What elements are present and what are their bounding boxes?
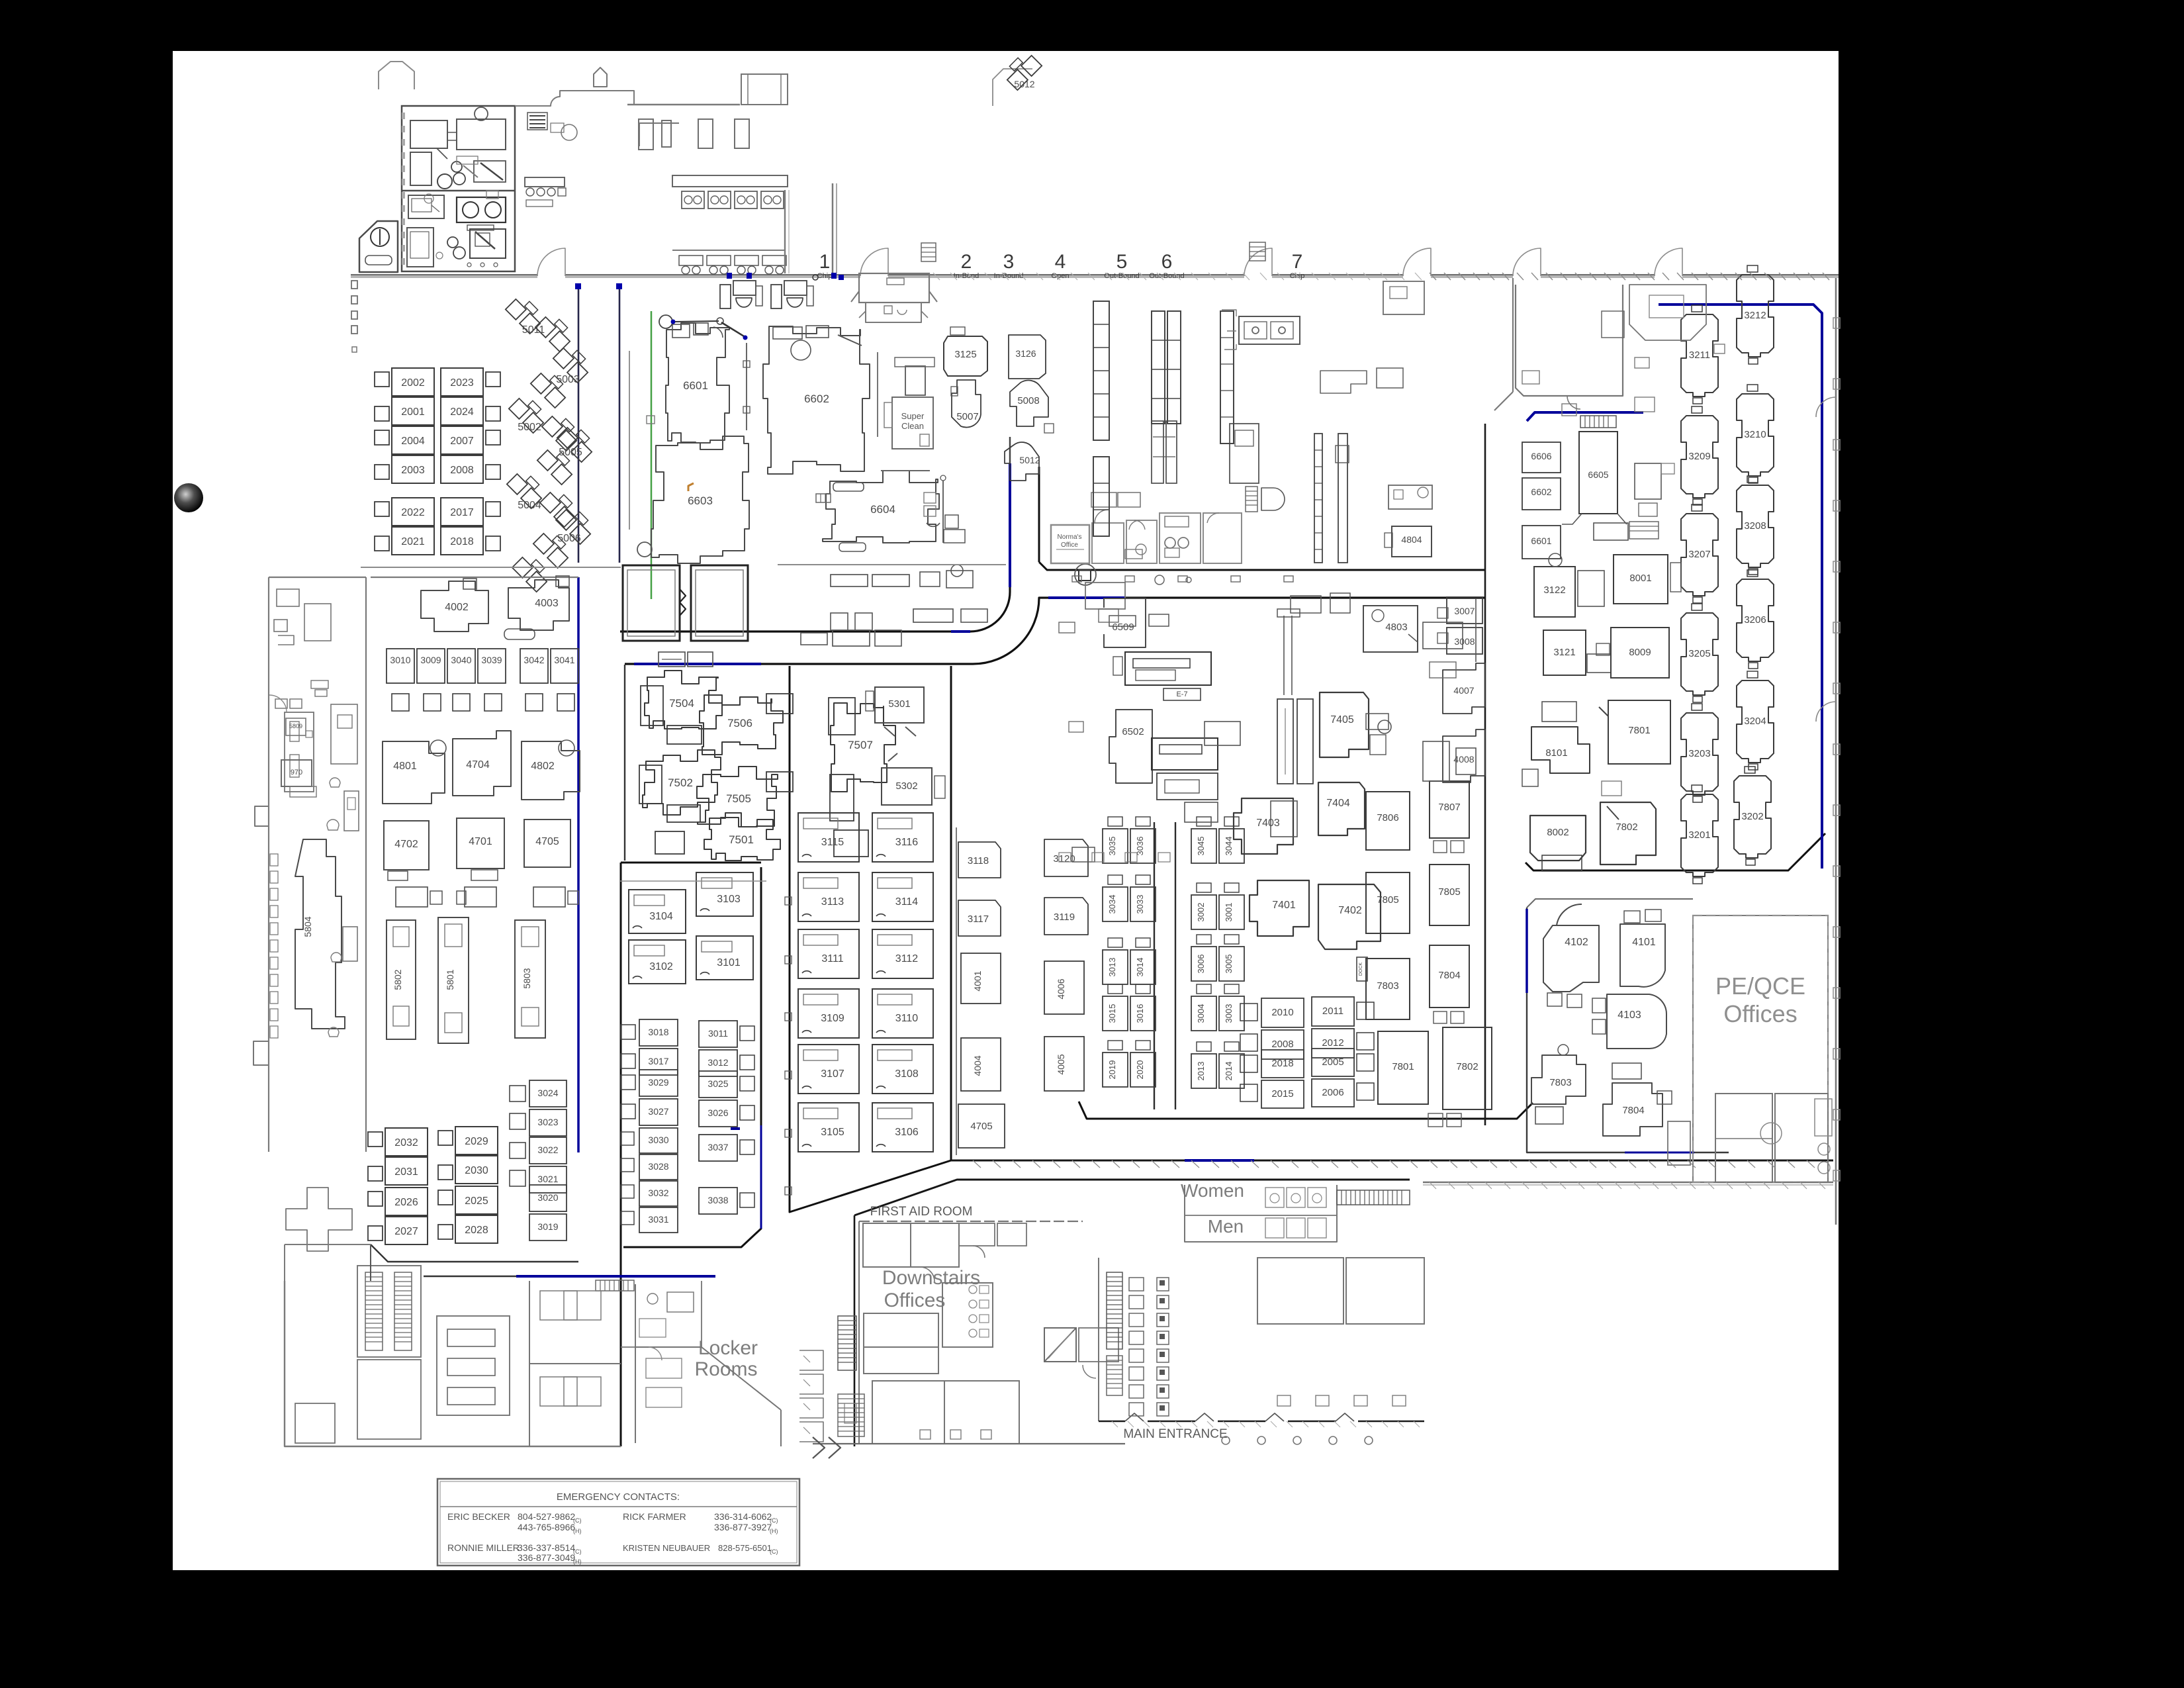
svg-text:2032: 2032 — [394, 1137, 418, 1149]
svg-text:3041: 3041 — [554, 655, 574, 665]
svg-text:7802: 7802 — [1615, 821, 1637, 833]
svg-text:2004: 2004 — [401, 436, 425, 447]
svg-text:6602: 6602 — [804, 393, 829, 405]
svg-text:3107: 3107 — [821, 1068, 844, 1080]
svg-text:7801: 7801 — [1628, 725, 1650, 736]
svg-text:3114: 3114 — [895, 896, 919, 908]
svg-text:6601: 6601 — [683, 379, 708, 392]
svg-text:3008: 3008 — [1454, 636, 1475, 647]
svg-text:4004: 4004 — [972, 1055, 983, 1076]
svg-text:Offices: Offices — [884, 1289, 946, 1311]
svg-text:5003: 5003 — [556, 374, 580, 385]
svg-text:4006: 4006 — [1056, 978, 1066, 999]
svg-text:Men: Men — [1208, 1216, 1244, 1237]
svg-text:2011: 2011 — [1322, 1006, 1343, 1017]
svg-text:7502: 7502 — [668, 776, 693, 789]
svg-text:5801: 5801 — [445, 969, 455, 990]
svg-text:3110: 3110 — [895, 1013, 919, 1024]
svg-text:Downstairs: Downstairs — [882, 1267, 980, 1289]
svg-text:4102: 4102 — [1565, 937, 1588, 948]
svg-text:2: 2 — [961, 251, 972, 273]
svg-text:DOCK: DOCK — [1359, 962, 1363, 976]
svg-text:336-877-3927: 336-877-3927 — [714, 1522, 772, 1532]
svg-text:EMERGENCY CONTACTS:: EMERGENCY CONTACTS: — [557, 1491, 680, 1503]
svg-text:2020: 2020 — [1135, 1060, 1145, 1080]
svg-text:4705: 4705 — [970, 1121, 992, 1132]
svg-text:3035: 3035 — [1107, 837, 1117, 856]
svg-text:3115: 3115 — [821, 837, 844, 848]
svg-text:Chip: Chip — [817, 272, 833, 280]
svg-text:5011: 5011 — [522, 324, 545, 336]
svg-text:3026: 3026 — [707, 1107, 728, 1118]
svg-text:3205: 3205 — [1688, 648, 1710, 659]
svg-text:(H): (H) — [573, 1558, 582, 1565]
svg-text:2017: 2017 — [450, 507, 474, 518]
svg-text:3201: 3201 — [1688, 829, 1710, 841]
svg-text:7506: 7506 — [727, 717, 752, 729]
svg-text:6601: 6601 — [1531, 536, 1551, 546]
svg-text:2026: 2026 — [394, 1197, 418, 1208]
svg-text:3206: 3206 — [1744, 614, 1766, 626]
svg-text:2003: 2003 — [401, 465, 425, 476]
svg-text:7803: 7803 — [1377, 980, 1398, 992]
svg-text:3102: 3102 — [649, 961, 673, 972]
svg-text:3017: 3017 — [648, 1056, 668, 1066]
svg-text:3005: 3005 — [1224, 955, 1234, 974]
svg-text:7806: 7806 — [1377, 812, 1398, 823]
svg-text:3010: 3010 — [390, 655, 410, 665]
svg-text:443-765-8966: 443-765-8966 — [518, 1522, 575, 1532]
svg-text:(H): (H) — [573, 1528, 582, 1534]
svg-text:4803: 4803 — [1385, 622, 1407, 633]
svg-text:8101: 8101 — [1545, 747, 1567, 759]
svg-text:4003: 4003 — [535, 598, 559, 609]
svg-text:4804: 4804 — [1401, 534, 1422, 545]
svg-text:3121: 3121 — [1553, 647, 1575, 658]
svg-text:7803: 7803 — [1549, 1077, 1571, 1088]
svg-text:2002: 2002 — [401, 377, 425, 389]
svg-text:2023: 2023 — [450, 377, 474, 389]
svg-text:3016: 3016 — [1135, 1004, 1145, 1023]
svg-text:2030: 2030 — [465, 1165, 488, 1176]
svg-text:7804: 7804 — [1622, 1105, 1644, 1116]
svg-text:3033: 3033 — [1135, 895, 1145, 914]
svg-text:4: 4 — [1055, 251, 1066, 273]
svg-text:3116: 3116 — [895, 837, 919, 848]
svg-text:3038: 3038 — [707, 1195, 728, 1205]
svg-text:5: 5 — [1116, 251, 1128, 273]
svg-text:Locker: Locker — [698, 1337, 758, 1359]
svg-text:804-527-9862: 804-527-9862 — [518, 1511, 575, 1522]
svg-text:2015: 2015 — [1271, 1088, 1293, 1100]
svg-text:336-877-3049: 336-877-3049 — [518, 1552, 575, 1563]
svg-text:In-Bond: In-Bond — [954, 272, 979, 280]
svg-text:3119: 3119 — [1054, 912, 1075, 923]
svg-text:2008: 2008 — [450, 465, 474, 476]
svg-text:5007: 5007 — [956, 411, 978, 422]
svg-text:4705: 4705 — [535, 836, 559, 847]
svg-text:3: 3 — [1003, 251, 1015, 273]
svg-text:3029: 3029 — [648, 1077, 668, 1088]
svg-text:FIRST AID ROOM: FIRST AID ROOM — [870, 1205, 973, 1219]
svg-text:4002: 4002 — [445, 602, 469, 613]
svg-text:2018: 2018 — [450, 536, 474, 547]
svg-text:5802: 5802 — [392, 969, 403, 990]
svg-text:3013: 3013 — [1107, 958, 1117, 977]
svg-text:336-314-6062: 336-314-6062 — [714, 1511, 772, 1522]
svg-text:3209: 3209 — [1688, 451, 1710, 462]
svg-text:3208: 3208 — [1744, 520, 1766, 532]
svg-text:3202: 3202 — [1741, 811, 1763, 822]
svg-text:Out-Bound: Out-Bound — [1104, 272, 1139, 280]
svg-text:5006: 5006 — [557, 533, 581, 544]
svg-text:2008: 2008 — [1271, 1039, 1293, 1050]
svg-text:3027: 3027 — [648, 1106, 668, 1117]
svg-text:4008: 4008 — [1453, 754, 1474, 765]
svg-text:3001: 3001 — [1224, 903, 1234, 922]
svg-text:6606: 6606 — [1531, 451, 1551, 461]
svg-text:7401: 7401 — [1272, 900, 1296, 911]
svg-text:3106: 3106 — [895, 1127, 919, 1138]
svg-text:2024: 2024 — [450, 406, 474, 418]
svg-text:5002: 5002 — [518, 422, 541, 433]
svg-text:7403: 7403 — [1256, 818, 1280, 829]
svg-text:7504: 7504 — [669, 697, 694, 710]
svg-text:7805: 7805 — [1438, 886, 1460, 898]
svg-text:3003: 3003 — [1224, 1004, 1234, 1023]
svg-text:3203: 3203 — [1688, 748, 1710, 759]
svg-text:(C): (C) — [770, 1548, 778, 1555]
svg-text:7807: 7807 — [1438, 802, 1460, 813]
svg-text:4101: 4101 — [1632, 937, 1656, 948]
svg-text:3006: 3006 — [1196, 955, 1206, 974]
svg-text:Office: Office — [1061, 541, 1078, 549]
svg-text:2013: 2013 — [1196, 1062, 1206, 1081]
svg-text:3031: 3031 — [648, 1214, 668, 1225]
svg-text:5301: 5301 — [888, 698, 910, 710]
svg-text:3117: 3117 — [968, 914, 989, 925]
svg-text:5803: 5803 — [522, 968, 532, 988]
svg-text:3204: 3204 — [1744, 716, 1766, 727]
svg-text:3105: 3105 — [821, 1127, 844, 1138]
svg-text:970: 970 — [291, 769, 302, 776]
svg-text:KRISTEN NEUBAUER: KRISTEN NEUBAUER — [623, 1543, 710, 1553]
svg-text:3002: 3002 — [1196, 903, 1206, 922]
svg-text:Rooms: Rooms — [694, 1358, 757, 1380]
svg-text:Norma's: Norma's — [1058, 534, 1082, 541]
svg-text:7: 7 — [1292, 251, 1303, 273]
svg-text:3104: 3104 — [649, 911, 673, 922]
svg-text:2022: 2022 — [401, 507, 425, 518]
svg-text:3042: 3042 — [523, 655, 544, 665]
svg-text:3207: 3207 — [1688, 549, 1710, 560]
svg-text:PE/QCE: PE/QCE — [1715, 972, 1805, 1000]
svg-text:3015: 3015 — [1107, 1004, 1117, 1023]
svg-text:4802: 4802 — [531, 761, 555, 772]
svg-text:5012: 5012 — [1014, 79, 1034, 89]
svg-text:3025: 3025 — [707, 1078, 728, 1089]
svg-text:3007: 3007 — [1454, 606, 1475, 616]
svg-text:4704: 4704 — [466, 759, 490, 771]
svg-text:3024: 3024 — [537, 1088, 558, 1098]
svg-text:4702: 4702 — [394, 839, 418, 850]
svg-text:In-Bound: In-Bound — [994, 272, 1024, 280]
svg-text:7501: 7501 — [729, 833, 754, 846]
svg-text:Super: Super — [901, 411, 925, 421]
svg-text:3014: 3014 — [1135, 958, 1145, 977]
svg-text:8001: 8001 — [1629, 573, 1651, 584]
svg-text:8009: 8009 — [1629, 647, 1651, 658]
svg-text:2005: 2005 — [1322, 1056, 1343, 1068]
svg-text:5005: 5005 — [559, 447, 582, 458]
svg-text:5004: 5004 — [518, 500, 541, 511]
svg-text:7805: 7805 — [1377, 894, 1398, 906]
svg-text:2019: 2019 — [1107, 1060, 1117, 1080]
svg-text:3111: 3111 — [821, 953, 843, 964]
svg-text:RONNIE MILLER: RONNIE MILLER — [447, 1542, 520, 1553]
svg-text:3045: 3045 — [1196, 837, 1206, 856]
svg-text:3103: 3103 — [717, 894, 741, 905]
svg-text:3021: 3021 — [537, 1174, 558, 1184]
svg-text:3108: 3108 — [895, 1068, 919, 1080]
svg-text:Clean: Clean — [901, 421, 924, 431]
svg-text:6604: 6604 — [870, 503, 895, 516]
svg-text:6: 6 — [1161, 251, 1173, 273]
svg-text:3023: 3023 — [537, 1117, 558, 1127]
svg-text:5809: 5809 — [289, 723, 302, 729]
svg-text:3028: 3028 — [648, 1161, 668, 1172]
svg-text:3113: 3113 — [821, 896, 844, 908]
svg-text:2029: 2029 — [465, 1136, 488, 1147]
svg-text:7801: 7801 — [1392, 1061, 1414, 1072]
svg-text:3212: 3212 — [1744, 310, 1766, 321]
svg-text:2014: 2014 — [1224, 1062, 1234, 1081]
svg-text:3112: 3112 — [895, 953, 919, 964]
svg-text:6603: 6603 — [688, 494, 713, 507]
svg-text:7405: 7405 — [1330, 714, 1354, 726]
svg-text:2007: 2007 — [450, 436, 474, 447]
svg-text:4007: 4007 — [1453, 685, 1474, 696]
svg-text:MAIN ENTRANCE: MAIN ENTRANCE — [1123, 1427, 1227, 1441]
svg-text:7507: 7507 — [848, 739, 873, 751]
svg-text:5008: 5008 — [1017, 395, 1039, 406]
svg-text:6502: 6502 — [1122, 726, 1144, 737]
svg-text:3211: 3211 — [1689, 350, 1710, 361]
svg-text:2006: 2006 — [1322, 1087, 1343, 1098]
svg-text:5302: 5302 — [895, 780, 917, 792]
svg-text:3118: 3118 — [968, 855, 989, 867]
svg-text:3032: 3032 — [648, 1188, 668, 1198]
svg-text:7404: 7404 — [1326, 798, 1350, 809]
svg-text:3022: 3022 — [537, 1145, 558, 1155]
svg-text:3037: 3037 — [707, 1142, 728, 1152]
svg-text:4801: 4801 — [393, 761, 417, 772]
svg-text:3040: 3040 — [451, 655, 471, 665]
svg-text:2010: 2010 — [1271, 1007, 1293, 1018]
svg-text:3109: 3109 — [821, 1013, 844, 1024]
svg-text:(H): (H) — [770, 1528, 778, 1534]
svg-text:4001: 4001 — [972, 970, 983, 991]
svg-text:6509: 6509 — [1112, 622, 1134, 633]
svg-text:4701: 4701 — [469, 836, 492, 847]
svg-text:6605: 6605 — [1588, 469, 1608, 480]
svg-text:Offices: Offices — [1723, 1000, 1797, 1027]
svg-text:3039: 3039 — [481, 655, 502, 665]
svg-text:2031: 2031 — [394, 1166, 418, 1178]
svg-text:6602: 6602 — [1531, 487, 1551, 497]
svg-text:2018: 2018 — [1271, 1058, 1293, 1069]
svg-text:5804: 5804 — [302, 916, 313, 937]
svg-text:2001: 2001 — [401, 406, 425, 418]
svg-text:3044: 3044 — [1224, 837, 1234, 856]
svg-text:2012: 2012 — [1322, 1037, 1343, 1049]
svg-text:5012: 5012 — [1019, 455, 1040, 465]
svg-text:3034: 3034 — [1107, 895, 1117, 914]
svg-text:1: 1 — [819, 251, 831, 273]
svg-text:3018: 3018 — [648, 1027, 668, 1037]
svg-text:4005: 4005 — [1056, 1054, 1066, 1074]
svg-text:2021: 2021 — [401, 536, 425, 547]
svg-text:8002: 8002 — [1547, 827, 1569, 838]
svg-text:ERIC BECKER: ERIC BECKER — [447, 1511, 510, 1522]
svg-text:E-7: E-7 — [1176, 690, 1187, 698]
svg-text:3012: 3012 — [707, 1057, 728, 1068]
svg-text:7505: 7505 — [726, 792, 751, 805]
svg-text:3101: 3101 — [717, 957, 741, 968]
svg-text:2025: 2025 — [465, 1196, 488, 1207]
svg-text:2027: 2027 — [394, 1226, 418, 1237]
svg-text:2028: 2028 — [465, 1225, 488, 1236]
svg-text:3019: 3019 — [537, 1221, 558, 1232]
svg-text:336-337-8514: 336-337-8514 — [518, 1542, 575, 1553]
svg-text:3004: 3004 — [1196, 1004, 1206, 1023]
svg-text:7402: 7402 — [1338, 905, 1362, 916]
svg-text:3009: 3009 — [420, 655, 441, 665]
svg-text:3210: 3210 — [1744, 429, 1766, 440]
svg-text:7802: 7802 — [1456, 1061, 1478, 1072]
svg-text:3125: 3125 — [954, 349, 976, 360]
svg-text:RICK FARMER: RICK FARMER — [623, 1511, 686, 1522]
svg-text:3126: 3126 — [1015, 348, 1036, 359]
svg-text:Women: Women — [1181, 1180, 1244, 1201]
svg-text:3011: 3011 — [708, 1028, 728, 1039]
svg-text:4103: 4103 — [1617, 1009, 1641, 1021]
svg-text:828-575-6501: 828-575-6501 — [718, 1543, 772, 1553]
svg-text:3122: 3122 — [1543, 585, 1565, 596]
svg-text:7804: 7804 — [1438, 970, 1460, 981]
svg-text:3020: 3020 — [537, 1192, 558, 1203]
svg-text:3030: 3030 — [648, 1135, 668, 1145]
